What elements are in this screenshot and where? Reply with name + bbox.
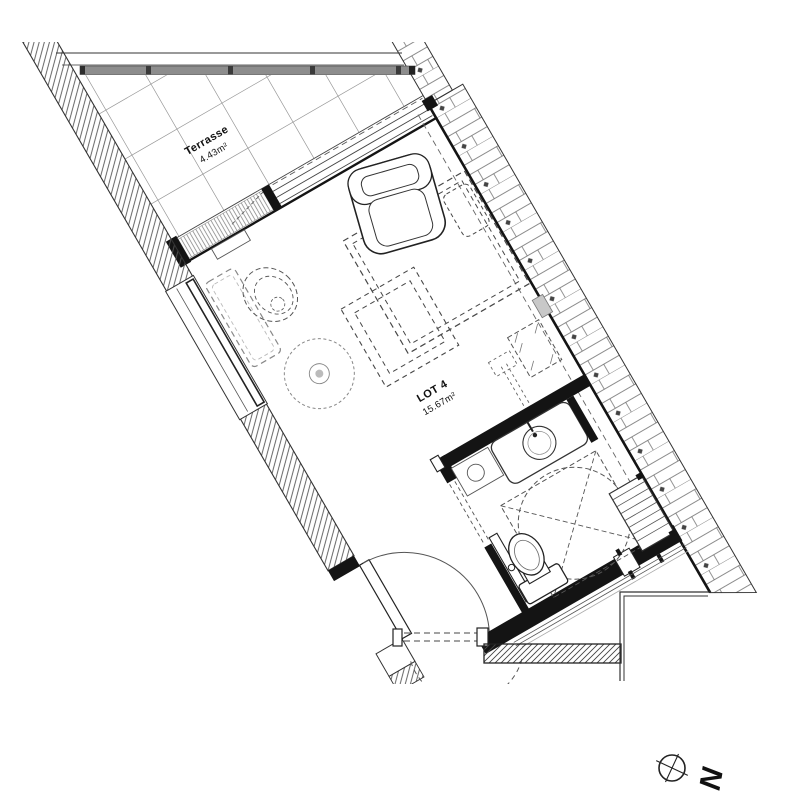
- north-label: N: [692, 764, 728, 792]
- terrace-parapet: [388, 21, 452, 104]
- living-room: [191, 121, 594, 537]
- threshold-dashes: [404, 633, 477, 641]
- left-wall: [12, 10, 425, 693]
- right-wall-inner-face: [428, 104, 710, 592]
- table: [341, 267, 459, 387]
- railing-band: [80, 66, 415, 75]
- entrance-door-leaf: [360, 560, 412, 639]
- north-compass: N: [656, 754, 728, 792]
- terrace-railing: [56, 53, 415, 75]
- corridor-swing-arc: [410, 659, 522, 702]
- compass-crosshair-icon: [656, 754, 688, 782]
- apartment-unit: Terrasse 4.43m² LOT 4 15.67m²: [12, 0, 756, 773]
- shell-chair: [232, 257, 309, 333]
- step-outline-inner: [624, 596, 708, 681]
- step-outline-outer: [620, 592, 711, 681]
- right-wall: [376, 15, 756, 620]
- floor-plan: Terrasse 4.43m² LOT 4 15.67m²: [0, 0, 789, 800]
- threshold-jamb-right: [477, 628, 488, 646]
- armchair: [344, 150, 449, 258]
- plant: [272, 326, 368, 422]
- floor-plan-page: Terrasse 4.43m² LOT 4 15.67m²: [0, 0, 789, 800]
- threshold-jamb-left: [393, 629, 402, 646]
- corridor-wall-hatch: [484, 644, 621, 663]
